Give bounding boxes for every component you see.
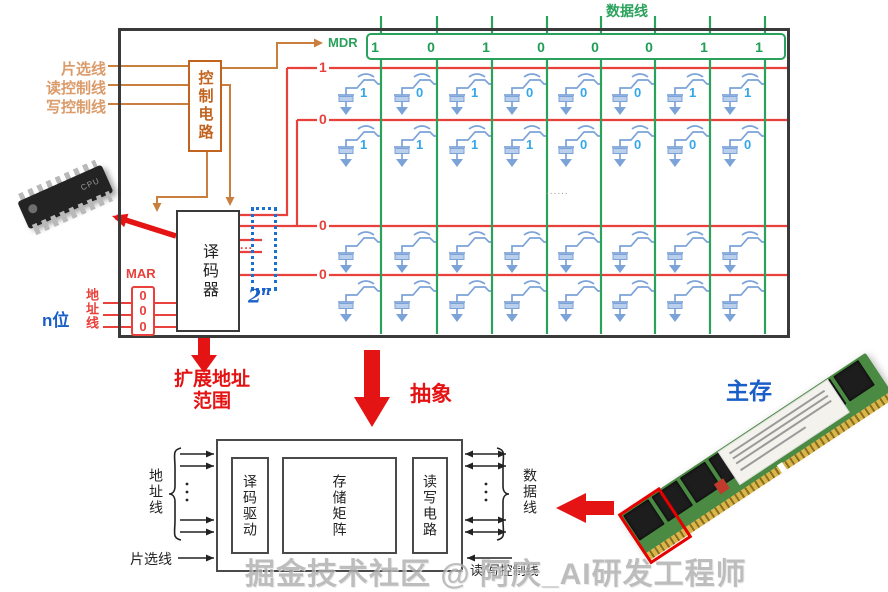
- address-bus-label: 地址线: [82, 288, 101, 330]
- rw-control-label: 读/写控制线: [470, 560, 539, 579]
- read-control-line-label: 读控制线: [40, 77, 106, 98]
- rw-circuit-label: 读写电路: [420, 474, 440, 538]
- chip-pin1-dot: [27, 203, 39, 215]
- mdr-bit: 0: [422, 39, 440, 55]
- mar-label: MAR: [126, 266, 156, 281]
- ram-module-image: [604, 352, 888, 562]
- word-line-value: 1: [317, 60, 329, 74]
- write-control-line-label: 写控制线: [40, 96, 106, 117]
- mdr-bit: 0: [532, 39, 550, 55]
- decode-drive-box: 译码驱动: [231, 457, 269, 554]
- address-lines-label: 地址线: [146, 468, 166, 516]
- mdr-bit: 1: [695, 39, 713, 55]
- mdr-label: MDR: [328, 35, 358, 50]
- decode-drive-label: 译码驱动: [240, 474, 260, 538]
- mar-bit: 0: [139, 288, 146, 303]
- storage-matrix-box: 存储矩阵: [282, 457, 397, 554]
- expand-address-annotation: 扩展地址 范围: [156, 369, 268, 413]
- mar-register: 0 0 0: [131, 286, 155, 336]
- mdr-bit: 1: [366, 39, 384, 55]
- control-circuit-label: 控制电路: [195, 70, 216, 142]
- data-lines-label: 数据线: [520, 468, 540, 516]
- memory-structure-diagram: 1010001111110000 数据线 MDR 片选线 读控制线 写控制线 控…: [0, 0, 888, 592]
- decoder-box: 译码器: [176, 210, 240, 332]
- rows-ellipsis: ......: [546, 186, 569, 197]
- chip-select-line-label: 片选线: [40, 58, 106, 79]
- word-line-value: 0: [317, 218, 329, 232]
- control-circuit-box: 控制电路: [188, 60, 222, 152]
- decoder-output-ellipsis: ...: [240, 238, 253, 252]
- data-bus-label: 数据线: [606, 1, 648, 21]
- word-line-value: 0: [317, 112, 329, 126]
- mar-bit: 0: [139, 319, 146, 334]
- mdr-bit: 1: [750, 39, 768, 55]
- word-line-value: 0: [317, 267, 329, 281]
- address-width-label: n位: [42, 306, 69, 331]
- word-line-group-box: [251, 207, 277, 291]
- mdr-bit: 1: [477, 39, 495, 55]
- chip-print-text: CPU: [79, 176, 101, 192]
- abstract-annotation: 抽象: [410, 378, 452, 408]
- decoder-label: 译码器: [196, 243, 220, 300]
- rw-circuit-box: 读写电路: [412, 457, 448, 554]
- storage-matrix-label: 存储矩阵: [330, 474, 350, 538]
- chip-select-bottom-label: 片选线: [130, 549, 172, 569]
- mar-bit: 0: [139, 303, 146, 318]
- mdr-bit: 0: [640, 39, 658, 55]
- ram-module: [619, 353, 888, 561]
- word-line-count-label: 2n: [248, 284, 271, 307]
- mdr-bit: 0: [586, 39, 604, 55]
